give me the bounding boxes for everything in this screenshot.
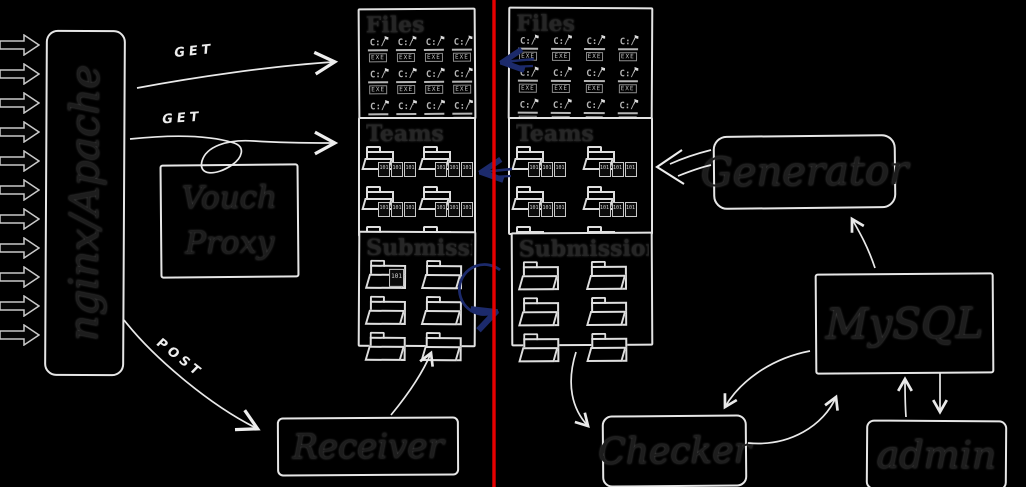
folder-icon [591,266,627,290]
flag-icon: ⚑ [468,35,473,43]
incoming-request-arrow [0,121,40,143]
edge-generator-teams-head [657,150,684,184]
team-folder-icon: 101 101 101 [364,187,413,221]
incoming-request-arrow [0,34,40,56]
dos-exe-icon: ⚑ C:/ EXE [450,38,474,64]
binary-file-icon: 101 [448,202,460,217]
checker-label: Checker [598,430,751,472]
binary-file-icon: 101 [599,202,611,217]
dos-exe-icon: ⚑ C:/ EXE [450,70,474,96]
flag-icon: ⚑ [440,99,445,107]
binary-file-icon: 101 [378,162,390,177]
binary-file-icon: 101 [541,202,553,217]
binary-file-icon: 101 [435,162,447,177]
binary-file-icon: 101 [404,202,416,217]
mysql-node: MySQL [815,272,995,374]
flag-icon: ⚑ [601,34,606,42]
flag-icon: ⚑ [440,35,445,43]
post-label: POST [153,336,207,381]
dos-exe-icon: ⚑ C:/ EXE [516,69,540,95]
flag-icon: ⚑ [534,34,539,42]
flag-icon: ⚑ [412,99,417,107]
flag-icon: ⚑ [384,99,389,107]
dos-exe-icon: ⚑ C:/ EXE [549,69,573,95]
folder-icon [591,302,627,326]
dos-exe-icon: ⚑ C:/ EXE [616,37,640,63]
team-folder-icon: 101 101 101 [514,147,577,181]
binary-file-icon: 101 [391,162,403,177]
dos-exe-icon: ⚑ C:/ EXE [394,70,418,96]
vouch-proxy-node: Vouch Proxy [160,163,300,278]
team-folder-icon: 101 101 101 [421,147,470,181]
team-folder-icon: 101 101 101 [585,187,648,221]
flag-icon: ⚑ [634,66,639,74]
receiver-label: Receiver [292,426,444,467]
files-store-right: Files ⚑ C:/ EXE ⚑ C:/ EXE ⚑ C:/ EX [508,7,654,121]
binary-file-icon: 101 [528,162,540,177]
incoming-request-arrow [0,266,40,288]
dos-exe-icon: ⚑ C:/ EXE [366,70,390,96]
dos-exe-icon: ⚑ C:/ EXE [516,37,540,63]
flag-icon: ⚑ [601,66,606,74]
admin-label: admin [877,433,997,478]
generator-node: Generator [713,134,897,210]
edge-admin-mysql [905,379,906,417]
binary-file-icon: 101 [435,202,447,217]
binary-file-icon: 101 [599,162,611,177]
flag-icon: ⚑ [568,34,573,42]
flag-icon: ⚑ [567,66,572,74]
flag-icon: ⚑ [567,98,572,106]
team-folder-icon: 101 101 101 [514,187,577,221]
folder-icon [523,302,559,326]
dos-exe-icon: ⚑ C:/ EXE [366,38,390,64]
incoming-request-arrow [0,150,40,172]
teams-store-left-title: Teams [366,121,472,147]
get-teams-label: GET [161,110,203,128]
files-store-left: Files ⚑ C:/ EXE ⚑ C:/ EXE ⚑ C:/ EX [358,8,477,121]
edge-checker-mysql [748,397,836,443]
flag-icon: ⚑ [468,67,473,75]
binary-file-icon: 101 [404,162,416,177]
architecture-diagram: nginx/Apache Vouch Proxy Generator MySQL… [0,0,1026,487]
teams-store-right-title: Teams [516,121,649,147]
binary-file-icon: 101 [461,202,473,217]
incoming-requests [0,34,40,346]
team-folder-icon: 101 101 101 [364,147,413,181]
incoming-request-arrow [0,237,40,259]
edge-mysql-checker [725,351,810,407]
flag-icon: ⚑ [534,66,539,74]
binary-file-icon: 101 [461,162,473,177]
nginx-apache-node: nginx/Apache [44,30,126,376]
edge-nginx-get-files [137,62,333,88]
submissions-store-right-title: Submissions [519,236,649,263]
flag-icon: ⚑ [412,35,417,43]
teams-store-left: Teams 101 101 101 101 101 [358,117,476,237]
folder-icon [523,338,559,362]
folder-icon [426,301,462,325]
incoming-request-arrow [0,92,40,114]
flag-icon: ⚑ [534,98,539,106]
generator-label: Generator [701,148,909,196]
folder-icon [370,337,406,361]
binary-file-icon: 101 [391,202,403,217]
teams-store-right: Teams 101 101 101 101 101 [508,117,653,235]
flag-icon: ⚑ [412,67,417,75]
folder-icon [591,338,627,362]
mysql-label: MySQL [825,298,983,348]
binary-file-icon: 101 [612,162,624,177]
dos-exe-icon: ⚑ C:/ EXE [422,70,446,96]
admin-node: admin [866,420,1007,487]
files-store-left-title: Files [366,12,472,39]
dos-exe-icon: ⚑ C:/ EXE [616,69,640,95]
binary-file-icon: 101 [612,202,624,217]
checker-node: Checker [602,414,748,487]
nginx-apache-label: nginx/Apache [61,65,108,341]
team-folder-icon: 101 101 101 [421,187,470,221]
receiver-node: Receiver [277,417,459,477]
flag-icon: ⚑ [440,67,445,75]
incoming-request-arrow [0,295,40,317]
flag-icon: ⚑ [600,98,605,106]
folder-icon [370,301,406,325]
folder-icon [426,265,462,289]
folder-icon [523,266,559,290]
submissions-store-right: Submissions [511,232,654,347]
binary-file-icon: 101 [448,162,460,177]
binary-file-icon: 101 [528,202,540,217]
dos-exe-icon: ⚑ C:/ EXE [583,37,607,63]
binary-file-icon: 101 [389,269,404,287]
binary-file-icon: 101 [378,202,390,217]
binary-file-icon: 101 [554,162,566,177]
vouch-proxy-label: Vouch Proxy [162,175,298,266]
flag-icon: ⚑ [634,98,639,106]
dos-exe-icon: ⚑ C:/ EXE [549,37,573,63]
team-folder-icon: 101 101 101 [585,147,648,181]
flag-icon: ⚑ [384,35,389,43]
binary-file-icon: 101 [541,162,553,177]
flag-icon: ⚑ [634,34,639,42]
binary-file-icon: 101 [554,202,566,217]
binary-file-icon: 101 [625,202,637,217]
incoming-request-arrow [0,179,40,201]
edge-mysql-generator [852,219,875,268]
dos-exe-icon: ⚑ C:/ EXE [422,38,446,64]
flag-icon: ⚑ [384,67,389,75]
get-files-label: GET [174,42,215,61]
dos-exe-icon: ⚑ C:/ EXE [582,69,606,95]
dos-exe-icon: ⚑ C:/ EXE [394,38,418,64]
flag-icon: ⚑ [468,99,473,107]
incoming-request-arrow [0,208,40,230]
submissions-store-left-title: Submissions [366,235,472,262]
incoming-request-arrow [0,63,40,85]
folder-icon [426,337,462,361]
incoming-request-arrow [0,324,40,346]
submissions-store-left: Submissions 101 [358,231,477,348]
binary-file-icon: 101 [625,162,637,177]
